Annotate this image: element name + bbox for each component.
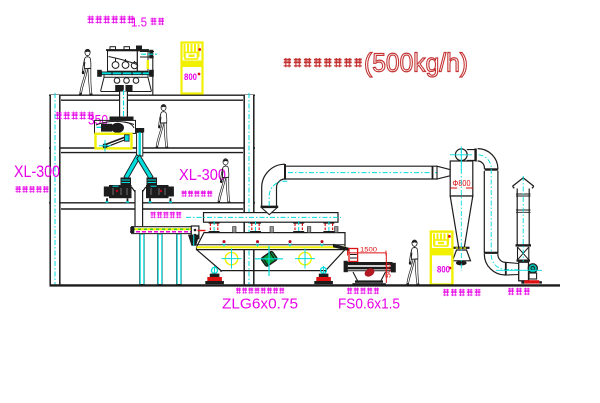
svg-text:1500: 1500 (360, 248, 378, 254)
svg-text:800: 800 (184, 72, 197, 82)
svg-text:500: 500 (386, 263, 393, 278)
svg-text:800: 800 (437, 265, 450, 275)
svg-text:ZLG6x0.75: ZLG6x0.75 (222, 296, 298, 313)
svg-text:FS0.6x1.5: FS0.6x1.5 (338, 296, 400, 313)
svg-text:XL-300: XL-300 (14, 162, 60, 181)
svg-text:XL-300: XL-300 (179, 167, 226, 184)
svg-text:(500kg/h): (500kg/h) (364, 48, 468, 78)
svg-text:1.5: 1.5 (131, 15, 147, 30)
